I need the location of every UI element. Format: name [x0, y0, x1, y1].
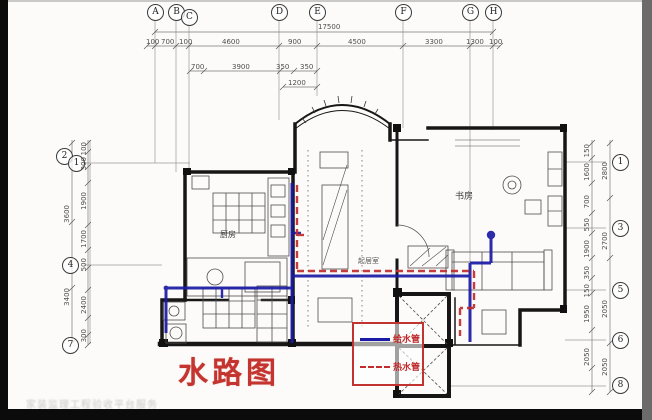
grid-bubble-right-1: 1: [612, 154, 629, 171]
legend-row-supply: 给水管: [360, 332, 430, 346]
grid-bubble-E: E: [309, 4, 326, 21]
dim-label: 1900: [80, 192, 88, 210]
dim-label: 3300: [425, 38, 443, 46]
legend-label-hot: 热水管: [393, 360, 420, 373]
dim-label: 1900: [583, 240, 591, 258]
grid-label: 6: [618, 336, 624, 345]
grid-lines: [80, 21, 606, 386]
grid-bubble-right-8: 8: [612, 377, 629, 394]
grid-label: E: [314, 8, 321, 17]
grid-bubble-H: H: [485, 4, 502, 21]
grid-label: 1: [74, 159, 80, 168]
dim-label: 2800: [601, 162, 609, 180]
dim-label: 150: [583, 284, 591, 297]
grid-label: C: [186, 13, 193, 22]
grid-label: 1: [618, 158, 624, 167]
photo-border-top: [0, 0, 652, 2]
dim-label: 4500: [348, 38, 366, 46]
room-label-kitchen: 厨房: [220, 229, 236, 240]
dim-label: 1950: [583, 305, 591, 323]
dim-label: 3400: [63, 288, 71, 306]
dim-label: 150: [583, 144, 591, 157]
plan-drawing: [0, 0, 652, 420]
grid-bubble-G: G: [462, 4, 479, 21]
grid-bubble-right-5: 5: [612, 282, 629, 299]
dim-label: 1600: [583, 163, 591, 181]
dim-label: 3900: [232, 63, 250, 71]
grid-bubble-left-4: 4: [62, 257, 79, 274]
grid-bubble-right-3: 3: [612, 220, 629, 237]
dim-label: 1300: [466, 38, 484, 46]
grid-label: H: [490, 8, 498, 17]
dim-label: 100: [80, 142, 88, 155]
dim-label: 2050: [583, 348, 591, 366]
dim-label: 500: [80, 258, 88, 271]
dim-label: 100: [146, 38, 159, 46]
grid-label: 4: [68, 261, 74, 270]
photo-border-right: [642, 0, 652, 420]
grid-bubble-A: A: [147, 4, 164, 21]
dim-label: 100: [489, 38, 502, 46]
dim-label: 100: [179, 38, 192, 46]
photo-border-left: [0, 0, 8, 420]
dimension-lines: [69, 29, 613, 395]
dim-label: 4600: [222, 38, 240, 46]
grid-label: 5: [618, 286, 624, 295]
grid-label: D: [276, 8, 283, 17]
drawing-title: 水路图: [178, 348, 280, 392]
dim-total: 17500: [318, 23, 340, 31]
grid-label: 7: [68, 341, 74, 350]
grid-bubble-F: F: [395, 4, 412, 21]
grid-bubble-C: C: [181, 9, 198, 26]
dim-label: 350: [583, 266, 591, 279]
dim-label: 2700: [601, 232, 609, 250]
room-label-hall: 起居室: [358, 256, 379, 266]
dim-label: 300: [80, 329, 88, 342]
floorplan-photo: A B C D E F G H 2 1 4 7 1 3 5 6 8 17500 …: [0, 0, 652, 420]
dim-label: 2050: [601, 358, 609, 376]
pipe-legend: 给水管 热水管: [352, 322, 424, 386]
dim-label: 700: [583, 195, 591, 208]
hot-pipe-swatch: [360, 366, 390, 368]
legend-label-supply: 给水管: [393, 332, 420, 345]
dim-label: 350: [300, 63, 313, 71]
supply-pipe-swatch: [360, 338, 390, 341]
dim-label: 1700: [80, 230, 88, 248]
legend-row-hot: 热水管: [360, 360, 430, 374]
dim-label: 550: [583, 218, 591, 231]
grid-label: G: [467, 8, 474, 17]
dim-label: 300: [80, 157, 88, 170]
photo-border-bottom: [0, 409, 652, 420]
grid-bubble-right-6: 6: [612, 332, 629, 349]
dim-label: 700: [161, 38, 174, 46]
grid-bubble-D: D: [271, 4, 288, 21]
grid-label: 8: [618, 381, 624, 390]
dim-label: 3600: [63, 205, 71, 223]
grid-label: F: [400, 8, 406, 17]
dim-label: 1200: [288, 79, 306, 87]
room-label-study: 书房: [455, 189, 473, 202]
grid-label: 3: [618, 224, 624, 233]
grid-label: B: [173, 8, 180, 17]
grid-bubble-left-7: 7: [62, 337, 79, 354]
grid-label: A: [152, 8, 159, 17]
dim-label: 900: [288, 38, 301, 46]
grid-label: 2: [62, 152, 68, 161]
dim-label: 2400: [80, 296, 88, 314]
dim-label: 2050: [601, 300, 609, 318]
dim-label: 350: [276, 63, 289, 71]
dim-label: 700: [191, 63, 204, 71]
